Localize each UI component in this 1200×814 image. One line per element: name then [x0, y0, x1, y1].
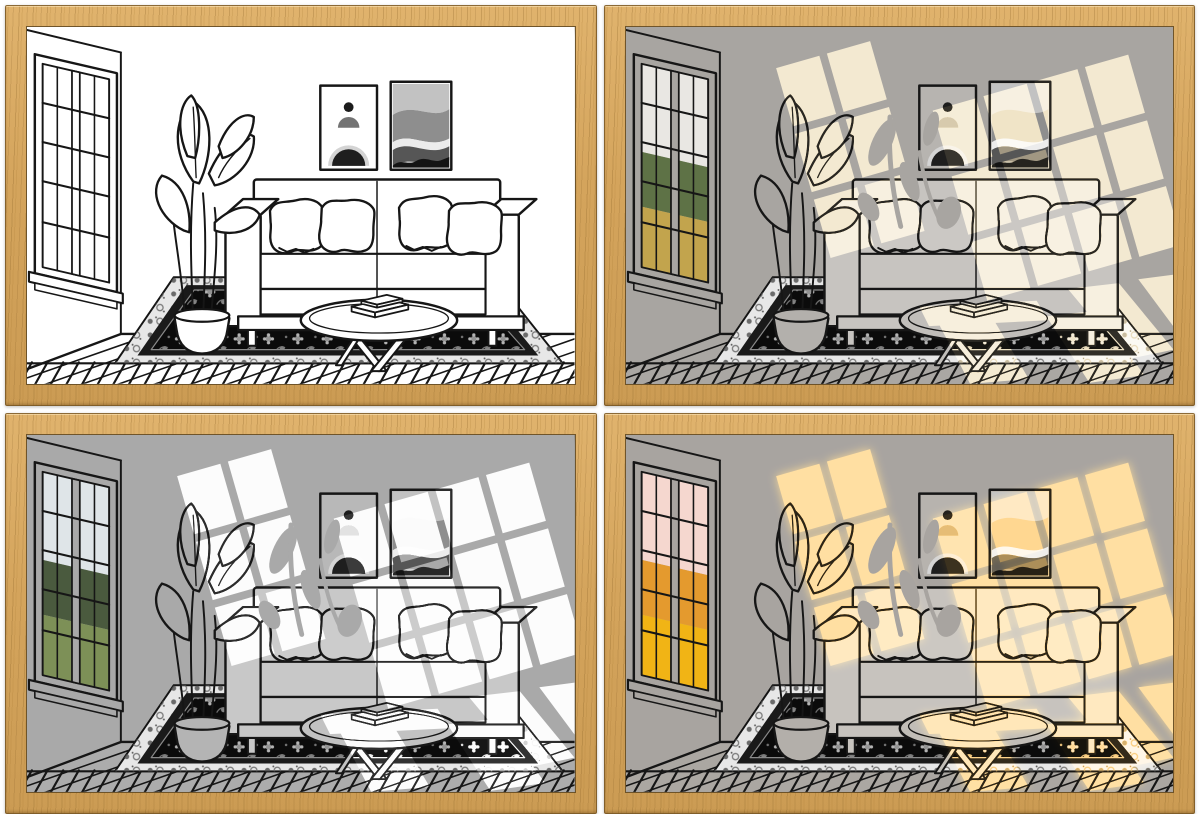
living-room-line-art [626, 435, 1174, 792]
framed-print-bottom-right-golden-hour [604, 413, 1196, 814]
light-art-canvas [626, 435, 1174, 792]
product-photo-grid [0, 0, 1200, 803]
framed-print-top-left-lights-off [5, 5, 597, 406]
light-art-canvas [27, 435, 575, 792]
living-room-line-art [27, 27, 575, 384]
living-room-line-art [27, 435, 575, 792]
framed-print-top-right-warm-daylight [604, 5, 1196, 406]
living-room-line-art [626, 27, 1174, 384]
light-art-canvas [27, 27, 575, 384]
framed-print-bottom-left-cool-white [5, 413, 597, 814]
light-art-canvas [626, 27, 1174, 384]
